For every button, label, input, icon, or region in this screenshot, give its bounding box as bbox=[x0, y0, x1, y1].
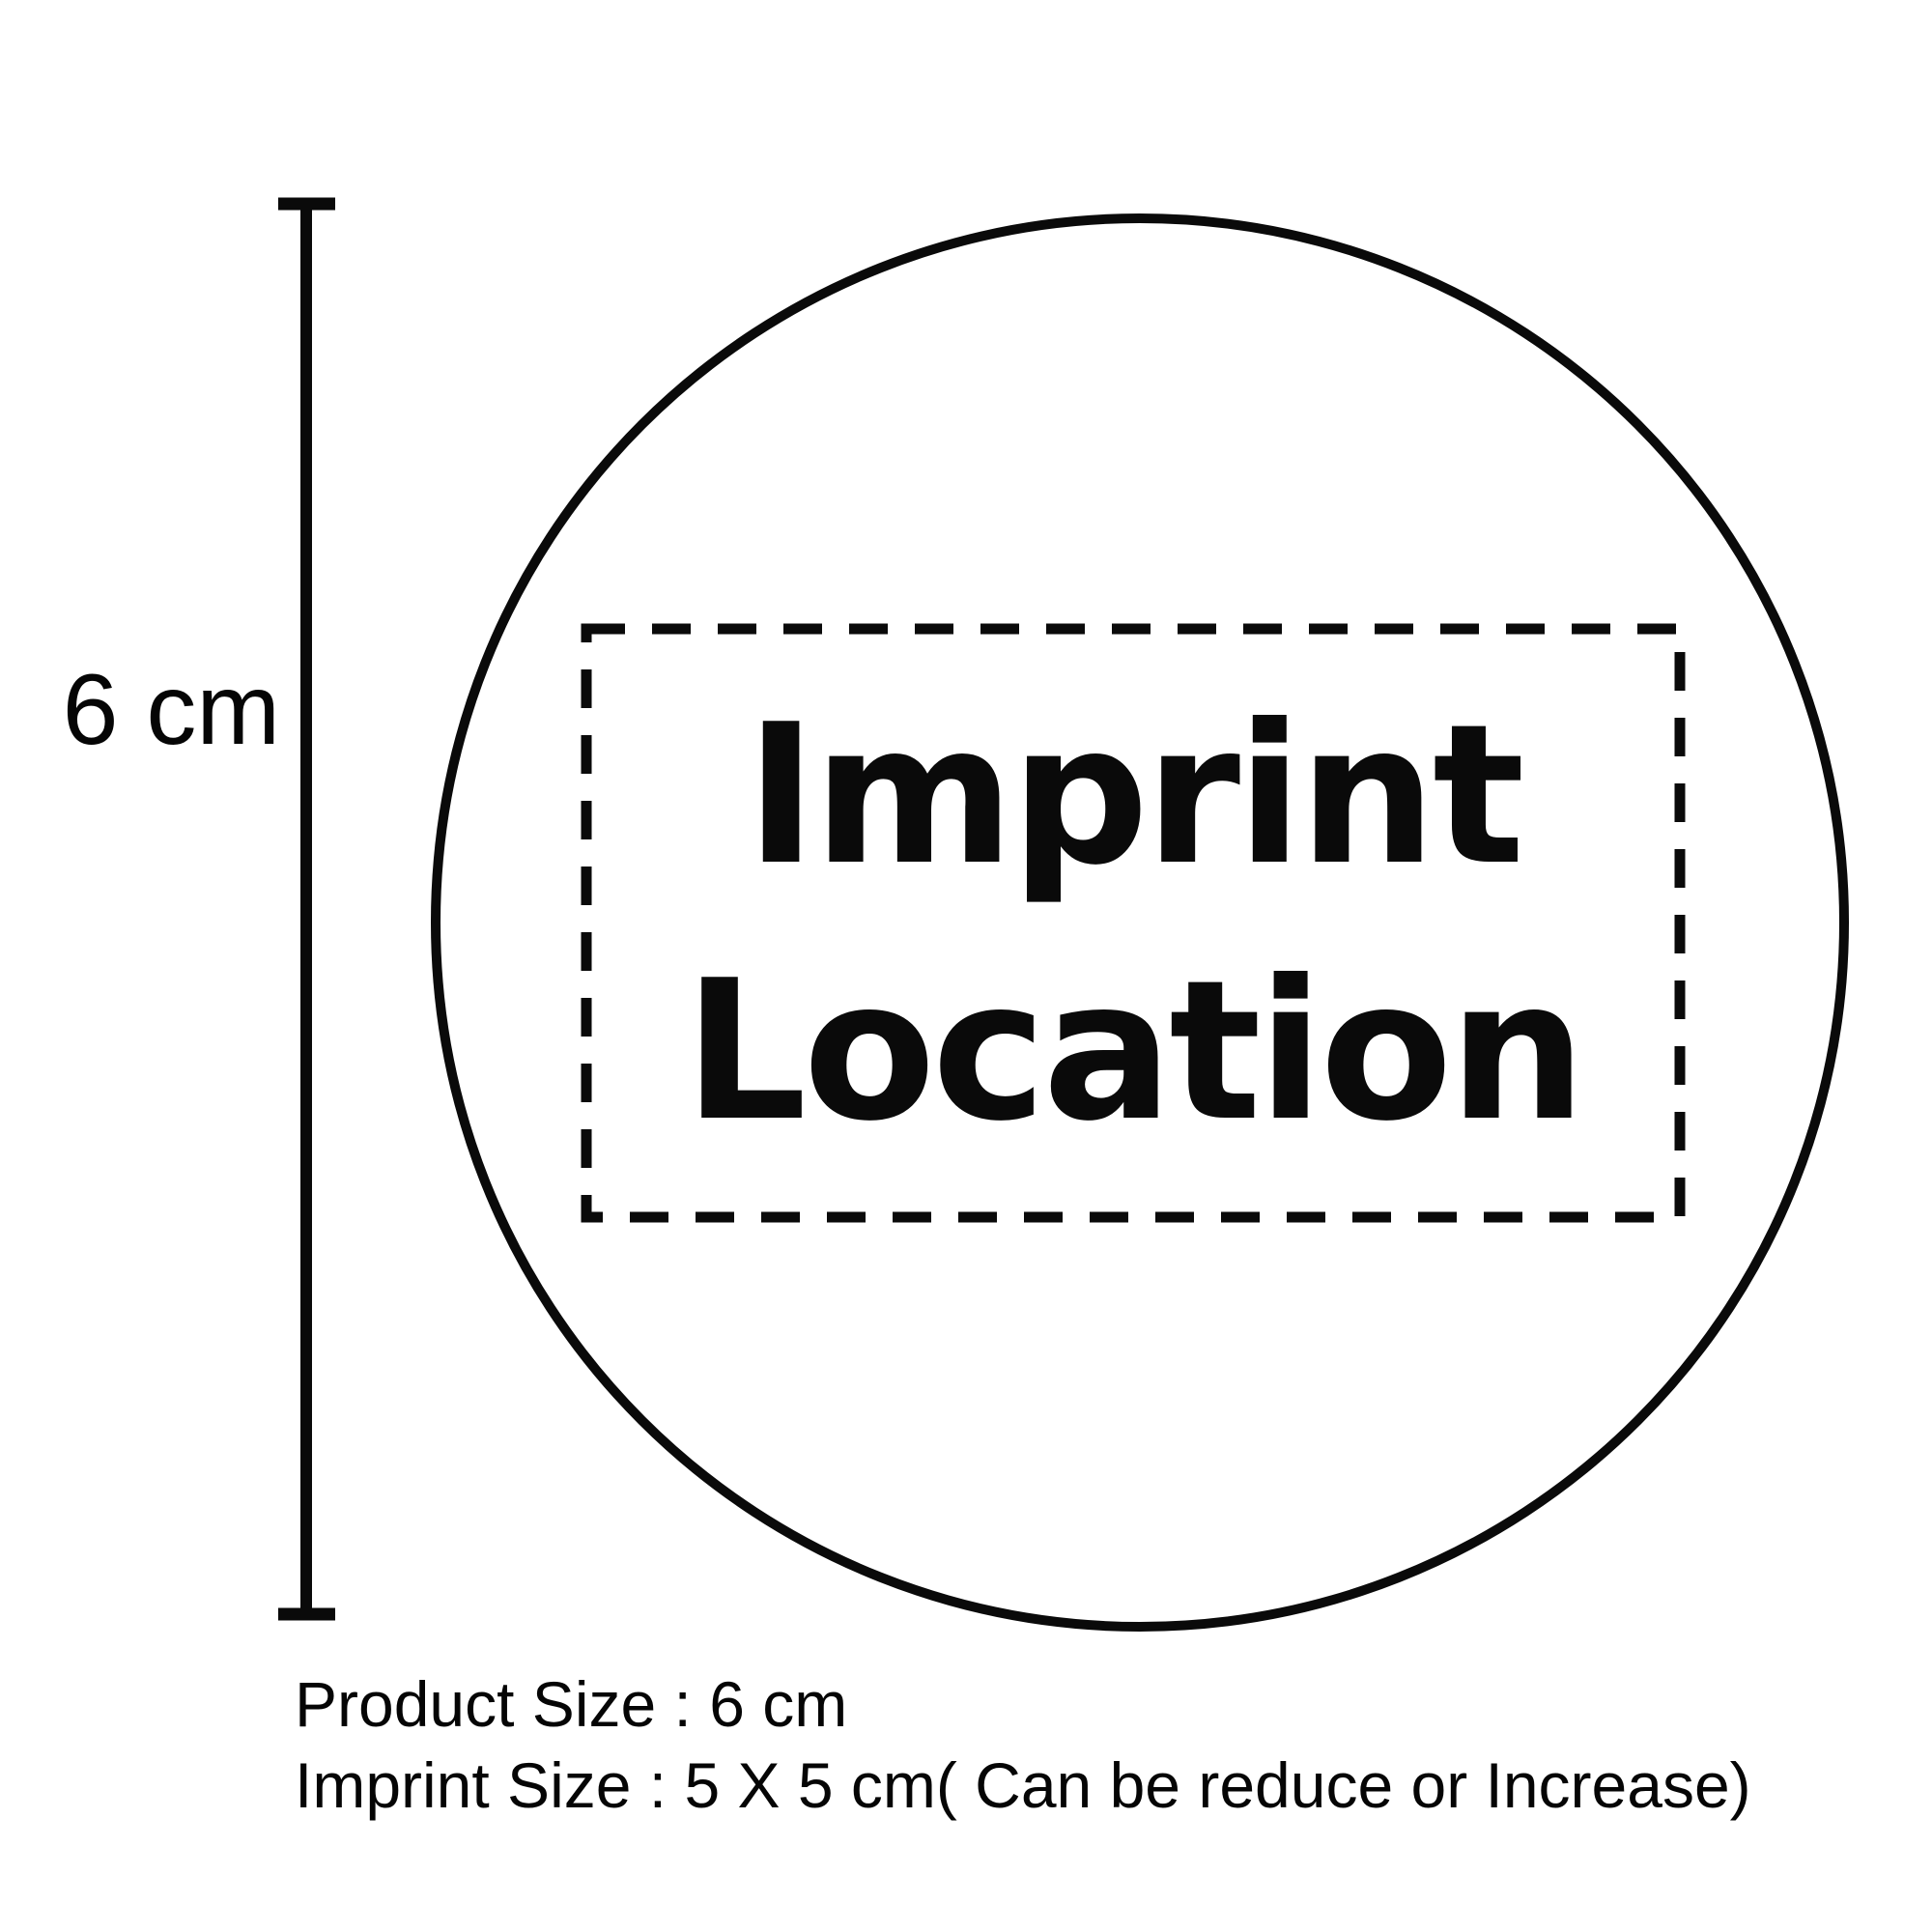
dimension-line bbox=[278, 204, 335, 1614]
caption-block: Product Size : 6 cm Imprint Size : 5 X 5… bbox=[295, 1663, 1889, 1826]
imprint-location-line1: Imprint bbox=[745, 668, 1520, 923]
imprint-location-line2: Location bbox=[684, 923, 1582, 1179]
imprint-location-label: Imprint Location bbox=[586, 629, 1680, 1217]
dimension-label: 6 cm bbox=[0, 660, 280, 760]
imprint-spec-diagram: Imprint Location 6 cm Product Size : 6 c… bbox=[0, 0, 1932, 1932]
caption-imprint-size: Imprint Size : 5 X 5 cm( Can be reduce o… bbox=[295, 1745, 1889, 1826]
caption-product-size: Product Size : 6 cm bbox=[295, 1663, 1889, 1745]
